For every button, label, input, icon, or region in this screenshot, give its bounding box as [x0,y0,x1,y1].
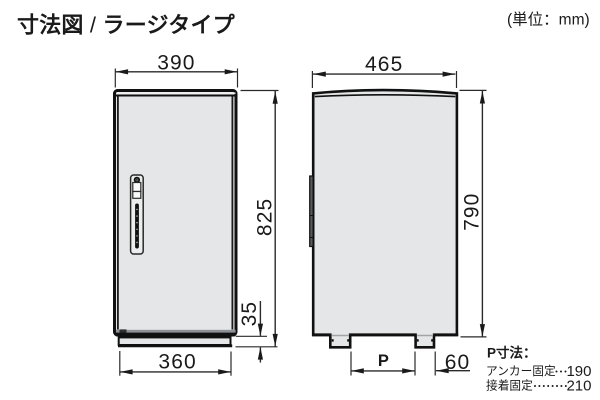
svg-text:P寸法：: P寸法： [487,345,537,361]
svg-text:35: 35 [238,301,261,327]
svg-text:接着固定: 接着固定 [486,378,533,392]
svg-text:465: 465 [365,53,403,76]
svg-text:60: 60 [445,351,471,374]
svg-text:790: 790 [461,193,484,231]
svg-text:360: 360 [158,351,196,374]
svg-text:825: 825 [254,198,277,236]
svg-text:P: P [378,352,389,370]
svg-text:アンカー固定: アンカー固定 [486,364,556,378]
svg-text:390: 390 [157,52,195,75]
svg-text:210: 210 [566,377,591,394]
svg-text:(単位：mm): (単位：mm) [507,11,590,29]
svg-text:寸法図 / ラージタイプ: 寸法図 / ラージタイプ [17,13,236,38]
